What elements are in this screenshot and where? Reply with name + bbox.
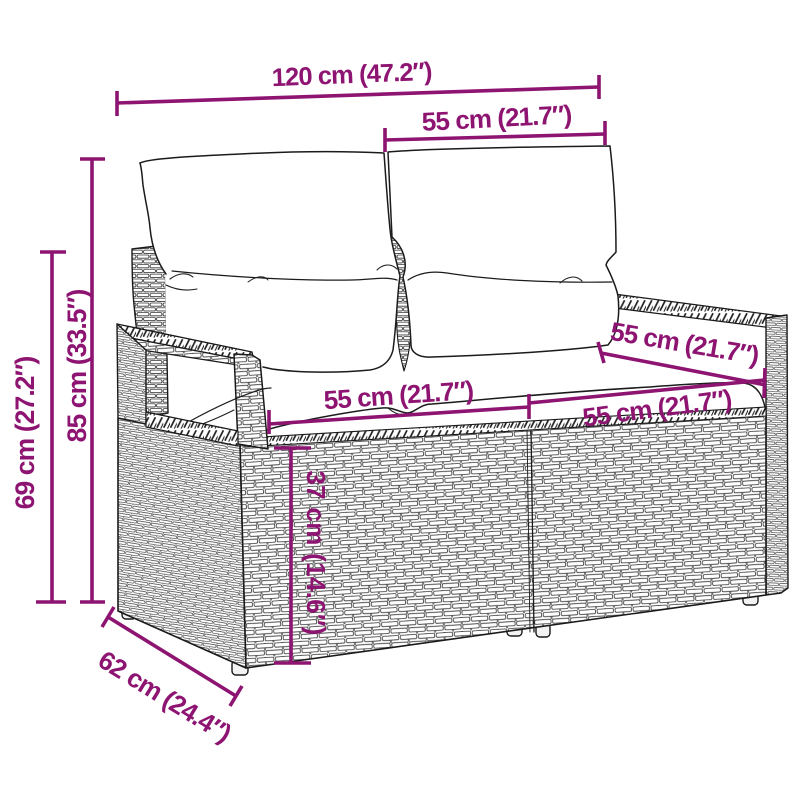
svg-text:69 cm (27.2″): 69 cm (27.2″)	[10, 357, 40, 510]
svg-text:85 cm (33.5″): 85 cm (33.5″)	[62, 290, 92, 443]
svg-text:37 cm (14.6″): 37 cm (14.6″)	[301, 470, 331, 635]
